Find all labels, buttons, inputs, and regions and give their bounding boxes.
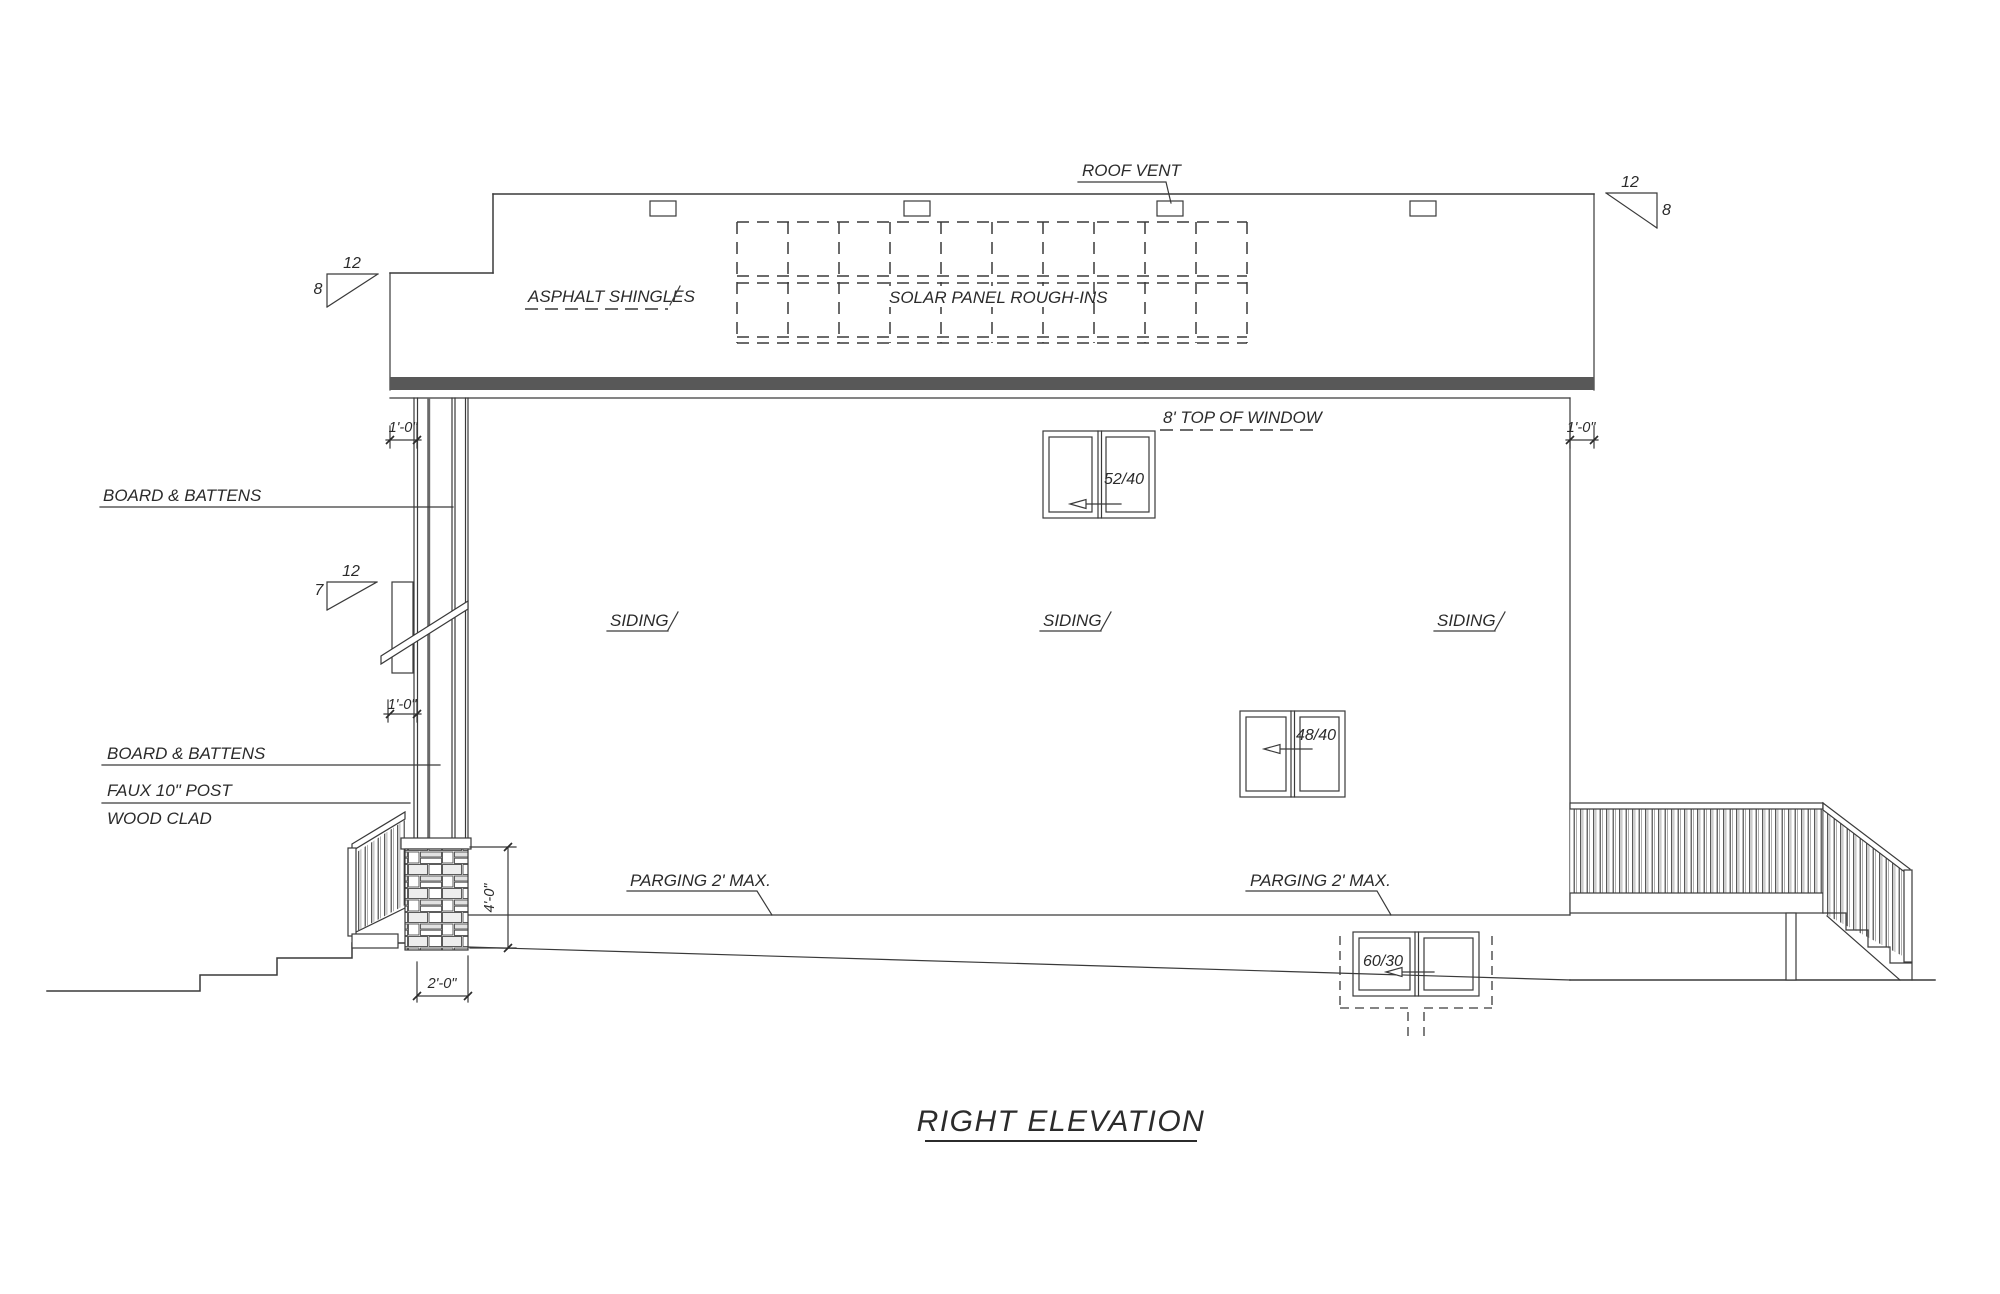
slope-run-label: 12 — [1621, 174, 1639, 191]
elevation-sheet: SOLAR PANEL ROUGH-INS 12 8 12 8 ROOF VEN… — [0, 0, 2000, 1294]
post-cap — [401, 838, 471, 849]
roof-vent-2 — [904, 201, 930, 216]
faux-post-label: FAUX 10" POST — [107, 781, 233, 800]
siding-label-center: SIDING — [1043, 611, 1102, 630]
roof-vent-1 — [650, 201, 676, 216]
roof-vent-label: ROOF VENT — [1082, 161, 1182, 180]
title-text: RIGHT ELEVATION — [917, 1105, 1206, 1138]
parging-label-right: PARGING 2' MAX. — [1250, 871, 1391, 890]
porch-step — [352, 934, 398, 948]
deck-rim-band — [1570, 893, 1823, 913]
porch-eave-edge — [392, 582, 413, 673]
dimension-text: 1'-0" — [1567, 420, 1597, 436]
slope-rise-label: 8 — [314, 281, 323, 298]
board-battens-label: BOARD & BATTENS — [103, 486, 262, 505]
deck-top-rail — [1570, 803, 1823, 809]
siding-label-right: SIDING — [1437, 611, 1496, 630]
dimension-text: 1'-0" — [389, 420, 419, 436]
parging-label-left: PARGING 2' MAX. — [630, 871, 771, 890]
window-size-label: 60/30 — [1363, 953, 1403, 970]
slope-rise-label: 7 — [315, 582, 325, 599]
dimension-text: 2'-0" — [427, 976, 458, 992]
solar-panel-label: SOLAR PANEL ROUGH-INS — [889, 288, 1108, 307]
top-of-window-label: 8' TOP OF WINDOW — [1163, 408, 1324, 427]
slope-rise-label: 8 — [1662, 202, 1671, 219]
dimension-text: 1'-0" — [388, 697, 418, 713]
stone-post-base — [401, 838, 471, 950]
railing-newel-post — [348, 848, 356, 936]
roof-vent-3 — [1157, 201, 1183, 216]
window-size-label: 48/40 — [1296, 727, 1336, 744]
siding-label-left: SIDING — [610, 611, 669, 630]
deck-balusters — [1570, 809, 1823, 893]
dimension-text: 4'-0" — [482, 883, 498, 913]
slope-run-label: 12 — [343, 255, 361, 272]
drawing-title: RIGHT ELEVATION — [917, 1105, 1206, 1141]
board-battens-label: BOARD & BATTENS — [107, 744, 266, 763]
slope-run-label: 12 — [342, 563, 360, 580]
stair-end-post — [1904, 870, 1912, 962]
stone-veneer — [405, 849, 468, 950]
asphalt-shingles-callout: ASPHALT SHINGLES — [525, 286, 696, 309]
asphalt-shingles-label: ASPHALT SHINGLES — [527, 287, 696, 306]
window-size-label: 52/40 — [1104, 471, 1144, 488]
roof-fascia-band — [390, 377, 1594, 390]
roof-vent-4 — [1410, 201, 1436, 216]
top-of-window-callout: 8' TOP OF WINDOW — [1160, 408, 1324, 430]
wood-clad-label: WOOD CLAD — [107, 809, 212, 828]
deck-support-post — [1786, 913, 1796, 980]
